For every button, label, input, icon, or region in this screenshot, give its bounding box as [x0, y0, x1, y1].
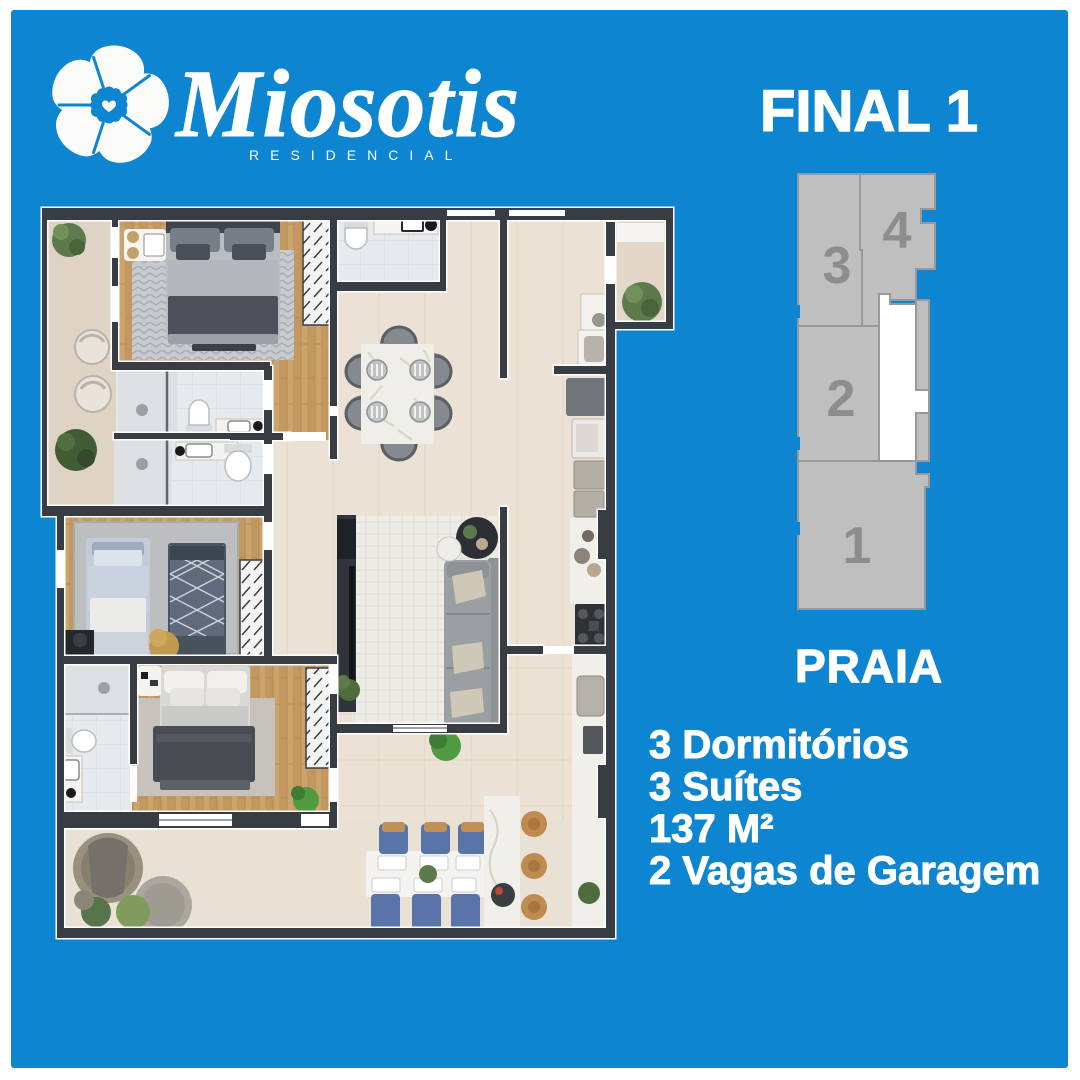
- svg-text:2: 2: [827, 370, 856, 428]
- svg-text:1: 1: [843, 517, 872, 575]
- svg-text:3: 3: [823, 237, 852, 295]
- svg-text:4: 4: [883, 202, 912, 260]
